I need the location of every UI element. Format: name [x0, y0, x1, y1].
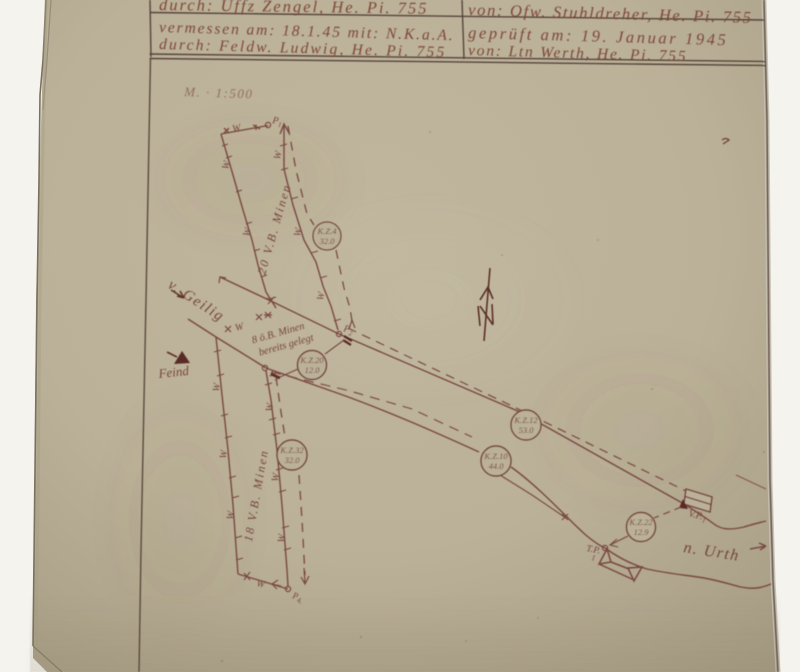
svg-text:K.Z.10: K.Z.10 — [483, 451, 508, 461]
svg-text:12.0: 12.0 — [305, 365, 321, 375]
svg-text:53.0: 53.0 — [519, 425, 535, 435]
svg-text:M. · 1:500: M. · 1:500 — [183, 84, 254, 101]
svg-text:K.Z.20: K.Z.20 — [299, 355, 324, 365]
svg-text:44.0: 44.0 — [489, 461, 505, 471]
svg-text:K.Z.32: K.Z.32 — [279, 445, 304, 455]
svg-text:32.0: 32.0 — [319, 236, 336, 246]
svg-text:12.9: 12.9 — [634, 527, 650, 537]
svg-text:K.Z.22: K.Z.22 — [628, 517, 653, 527]
svg-text:K.Z.4: K.Z.4 — [317, 226, 338, 236]
svg-text:K.Z.12: K.Z.12 — [513, 415, 538, 425]
svg-text:32.0: 32.0 — [284, 455, 301, 465]
